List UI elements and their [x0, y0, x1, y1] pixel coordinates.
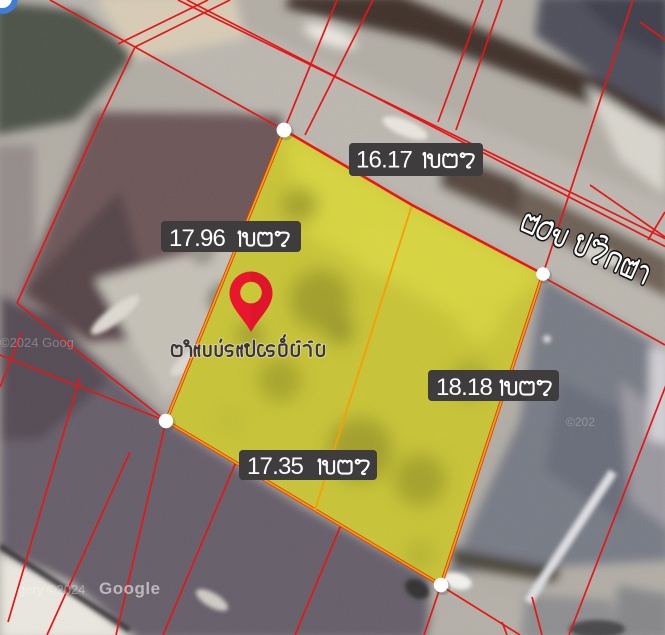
svg-text:©2024 Goog: ©2024 Goog: [0, 335, 74, 350]
svg-text:17.96: 17.96: [169, 225, 226, 252]
svg-text:17.35: 17.35: [247, 453, 304, 480]
svg-text:Google: Google: [99, 579, 161, 598]
svg-text:©202: ©202: [566, 415, 595, 429]
svg-text:gery ©2024: gery ©2024: [18, 582, 85, 597]
svg-text:16.17: 16.17: [356, 147, 413, 174]
svg-text:18.18: 18.18: [436, 374, 493, 401]
